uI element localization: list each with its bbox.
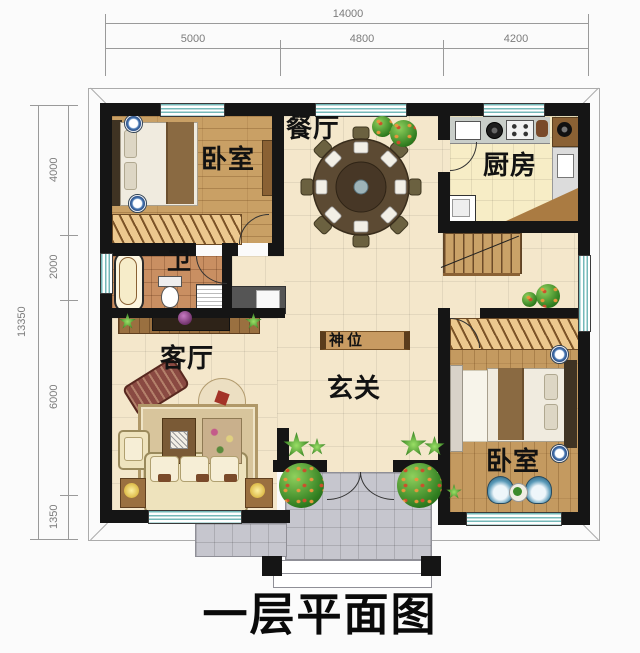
left-dim-tick [60, 300, 78, 301]
wall-kitchen-south [438, 221, 590, 233]
bedside-lamp [550, 444, 569, 463]
gas-stove [506, 120, 534, 140]
toilet-bowl [161, 286, 179, 308]
room-label-kitchen: 厨房 [483, 152, 537, 178]
bed-pillow [124, 130, 137, 158]
top-dim-tick [443, 40, 444, 76]
eave-corner-mark [90, 523, 108, 541]
top-dim-total-line [105, 23, 589, 24]
left-dim-tick [60, 495, 78, 496]
window-bedroom-se-south [466, 512, 562, 526]
utensil-rack [536, 120, 548, 137]
porch-pillar [421, 556, 441, 576]
top-dim-tick [280, 40, 281, 76]
bedside-lamp [124, 114, 143, 133]
corner-burner [557, 122, 572, 137]
flower-vase [178, 311, 192, 325]
window-top-kitchen [483, 103, 545, 117]
top-dim-total-label: 14000 [310, 8, 386, 20]
bed-pillow [544, 404, 558, 430]
left-dim-seg-label: 6000 [48, 367, 60, 427]
tea-table-plant [513, 487, 522, 496]
left-dim-seg-label: 4000 [48, 140, 60, 200]
room-label-dining: 餐厅 [286, 115, 340, 141]
bedside-lamp [550, 345, 569, 364]
wardrobe-bedroom-nw [112, 214, 242, 245]
sink-cabinet-basin [452, 199, 470, 217]
staircase [443, 233, 522, 274]
bathroom-vanity [196, 284, 224, 310]
eave-line-bottom-right [430, 540, 600, 541]
sofa-pillow [224, 474, 237, 482]
potted-plant [536, 284, 560, 308]
top-dim-tick [588, 14, 589, 76]
left-dim-seg-label: 2000 [48, 237, 60, 297]
porch-bush [397, 463, 442, 508]
bed-pillow [544, 374, 558, 400]
coffee-table-decor [170, 431, 188, 449]
bed-headboard [564, 360, 577, 448]
wall-bedroom-nw-south [268, 243, 284, 256]
porch-pillar [262, 556, 282, 576]
porch-step [280, 560, 425, 574]
potted-plant [390, 120, 417, 147]
bed-blanket [498, 368, 524, 440]
porch-step [273, 573, 432, 588]
top-dim-seg-label: 4200 [483, 33, 549, 45]
sofa-pillow [158, 474, 171, 482]
bed-blanket [166, 122, 194, 204]
sofa-pillow [196, 474, 209, 482]
kitchen-sink [557, 154, 574, 178]
eave-line-left [88, 88, 89, 540]
bathtub-inner [119, 257, 137, 305]
nook-cabinet-panel [256, 290, 280, 310]
wall-bedroom-se-north [480, 308, 590, 318]
eave-line-top [88, 88, 600, 89]
dresser-bedroom-se [450, 365, 463, 452]
page-title: 一层平面图 [120, 592, 520, 637]
wall-bedroom-nw-east [272, 103, 284, 256]
wall-kitchen-west [438, 103, 450, 140]
eave-line-bottom-left [88, 540, 196, 541]
microwave [455, 121, 481, 140]
top-dim-seg-label: 4800 [329, 33, 395, 45]
room-label-bathroom: 卫 [167, 250, 192, 274]
lamp-glow [250, 483, 265, 498]
top-dim-tick [105, 14, 106, 76]
room-label-bedroom-nw: 卧室 [201, 146, 255, 172]
eave-corner-mark [581, 523, 599, 541]
left-dim-seg-label: 1350 [48, 487, 60, 547]
window-hall-east [578, 255, 591, 332]
burner [486, 122, 503, 139]
room-label-bedroom-se: 卧室 [486, 448, 540, 474]
left-dim-tick [30, 105, 78, 106]
porch-floor-annex [195, 523, 287, 557]
top-dim-seg-line [105, 48, 589, 49]
eave-line-right [599, 88, 600, 540]
stair-railing [443, 273, 520, 276]
window-top-bedroom [160, 103, 225, 117]
left-dim-tick [60, 235, 78, 236]
potted-plant [522, 292, 537, 307]
floor-plan-canvas: 14000 5000 4800 4200 13350 4000 2000 600… [0, 0, 640, 653]
porch-bush [279, 463, 324, 508]
room-label-living: 客厅 [160, 345, 214, 371]
bedside-lamp [128, 194, 147, 213]
window-living-south [148, 510, 242, 524]
tub-chair [525, 476, 552, 504]
top-dim-seg-label: 5000 [160, 33, 226, 45]
room-label-shrine: 神位 [329, 333, 365, 348]
left-dim-seg-line [68, 105, 69, 539]
room-label-foyer: 玄关 [327, 375, 381, 401]
bed-pillow [124, 162, 137, 190]
window-bathroom-west [100, 253, 113, 294]
armchair-cushion [124, 437, 143, 461]
lamp-glow [124, 483, 139, 498]
stair-break-line [441, 236, 519, 268]
left-dim-total-label: 13350 [16, 282, 28, 362]
left-dim-total-line [38, 105, 39, 539]
